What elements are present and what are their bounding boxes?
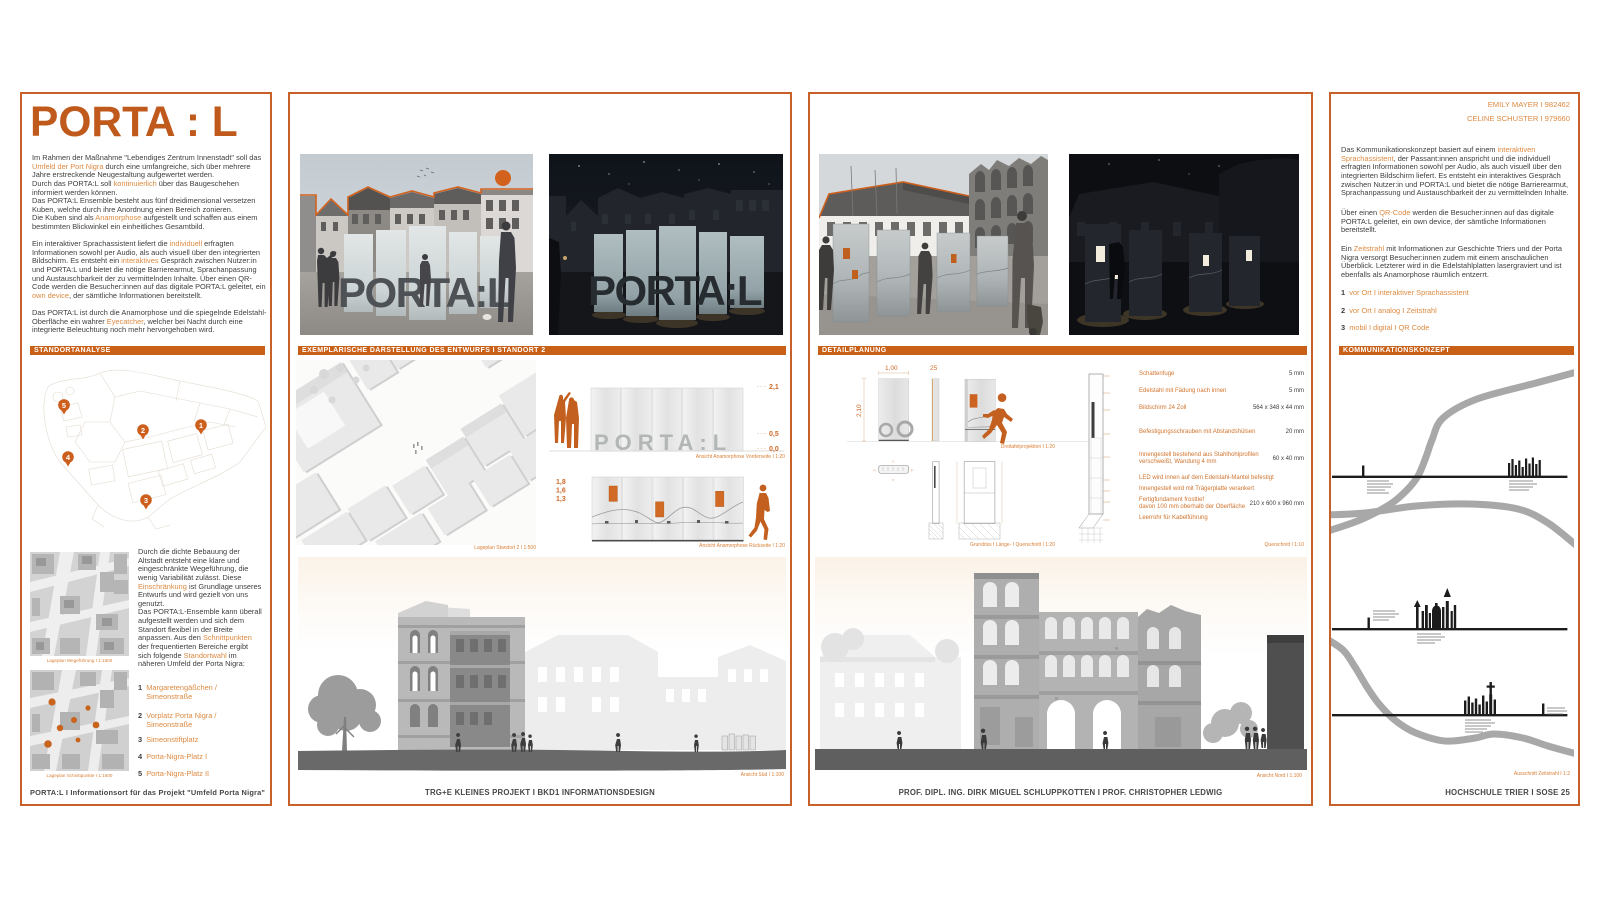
svg-text:25: 25: [930, 365, 938, 372]
svg-text:3: 3: [144, 496, 148, 505]
svg-text:◁: ◁: [873, 468, 876, 472]
svg-text:PORTA:L: PORTA:L: [594, 430, 732, 455]
svg-text:1: 1: [199, 421, 203, 430]
svg-text:△: △: [892, 459, 895, 463]
svg-text:PORTA:L: PORTA:L: [588, 267, 762, 314]
svg-text:2,1: 2,1: [769, 384, 779, 391]
svg-text:▷: ▷: [911, 468, 914, 472]
svg-text:1,8: 1,8: [556, 479, 566, 486]
svg-text:2,10: 2,10: [856, 404, 863, 417]
svg-text:▽: ▽: [892, 478, 895, 482]
svg-text:1,6: 1,6: [556, 488, 566, 495]
svg-text:2: 2: [141, 426, 145, 435]
svg-text:1,3: 1,3: [556, 496, 566, 503]
svg-text:0,5: 0,5: [769, 431, 779, 438]
svg-text:0,0: 0,0: [769, 446, 779, 453]
svg-text:5: 5: [62, 401, 66, 410]
svg-text:1,00: 1,00: [885, 365, 898, 372]
